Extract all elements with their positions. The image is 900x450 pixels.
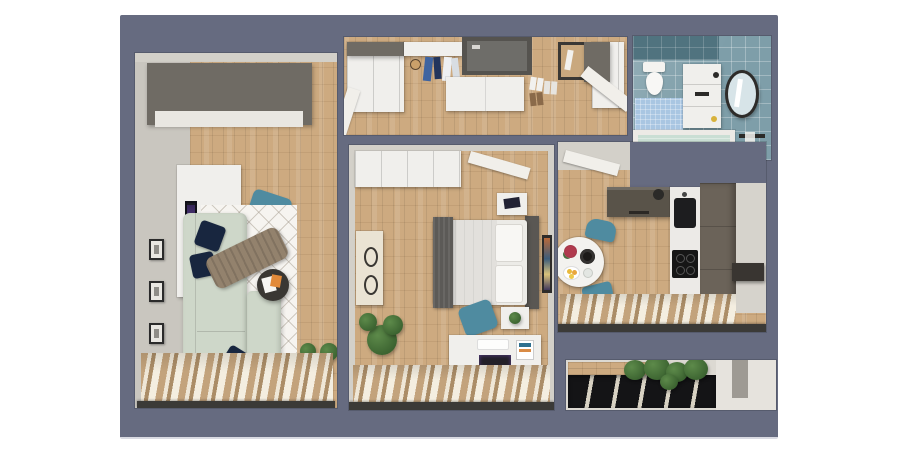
floor-plan-canvas	[0, 0, 900, 450]
dresser	[356, 231, 383, 305]
vanity-sink	[683, 64, 721, 128]
kitchen-curtains	[560, 294, 736, 324]
room-living	[135, 53, 337, 408]
bedroom-wardrobe	[355, 151, 461, 187]
kitchen-notch	[630, 142, 766, 187]
bed-headboard	[525, 216, 539, 309]
bedroom-curtains	[353, 365, 550, 402]
room-hallway	[344, 37, 627, 135]
cooktop	[672, 250, 698, 278]
bath-mat	[635, 98, 683, 130]
living-top-wall	[135, 53, 337, 62]
nightstand-top	[497, 193, 527, 215]
bed-pillow	[495, 224, 523, 262]
room-kitchen	[558, 142, 766, 332]
room-bedroom	[349, 145, 554, 410]
living-curtains	[141, 353, 333, 401]
wall-frame	[149, 281, 164, 302]
balcony-right-wall	[716, 360, 776, 410]
living-window-sill	[137, 401, 335, 408]
shoe-bench	[446, 77, 524, 111]
bed-dark-throw	[433, 217, 453, 308]
floor-plan-board	[120, 15, 778, 439]
bathroom-ledge	[633, 36, 719, 60]
bedroom-open-door	[468, 151, 531, 180]
kettle	[653, 189, 664, 200]
bed-pillow	[495, 265, 523, 303]
bedroom-window-sill	[349, 402, 554, 410]
kitchen-window-sill	[558, 324, 766, 332]
round-mirror	[725, 70, 759, 118]
front-door	[462, 37, 532, 75]
wall-frame	[149, 323, 164, 344]
kitchen-wall-shelf	[732, 263, 764, 281]
bedroom-wall-art	[542, 235, 552, 293]
kitchen-sink	[674, 198, 696, 228]
wall-frame	[149, 239, 164, 260]
dining-table	[558, 237, 604, 287]
room-balcony	[566, 360, 776, 410]
coffee-table	[257, 269, 289, 301]
hall-wardrobe-left-top	[347, 42, 404, 56]
coat-rack-shelf	[404, 42, 462, 56]
nightstand-bottom	[501, 307, 529, 329]
living-wardrobe-front	[155, 111, 303, 127]
kitchen-right-wall	[736, 183, 766, 313]
